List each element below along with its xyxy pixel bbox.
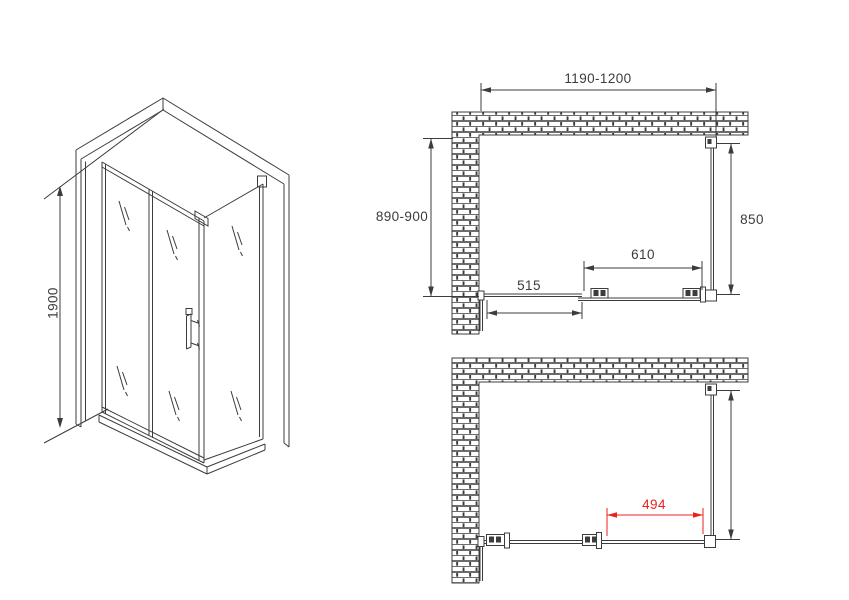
dimension-label-depth-right: 850: [740, 212, 764, 227]
dimension-label-height: 1900: [46, 287, 61, 319]
door-track-closed: [478, 287, 717, 331]
dimension-label-door-opening: 494: [642, 497, 666, 512]
dimension-label-depth-left: 890-900: [376, 209, 428, 224]
door-track-open: [478, 533, 716, 582]
dimension-label-fixed-width: 515: [517, 278, 541, 293]
dimension-depth-unlabeled: [716, 391, 740, 540]
glass-shine-marks: [117, 201, 243, 421]
dimension-label-overall-width: 1190-1200: [564, 71, 631, 86]
wall-corner: [76, 98, 289, 447]
dimension-height: 1900: [44, 109, 164, 443]
dimension-fixed-width: 515: [487, 278, 582, 319]
shower-tray: [99, 415, 265, 474]
side-panel: [204, 176, 267, 460]
side-panel-plan: [706, 137, 717, 295]
dimension-depth-right: 850: [716, 144, 764, 295]
plan-view-closed: 1190-1200 890-900 850 610: [376, 71, 764, 334]
technical-drawing-page: 1900: [0, 0, 849, 600]
dimension-door-width: 610: [584, 247, 702, 291]
dimension-label-door-width: 610: [631, 247, 655, 262]
dimension-door-opening: 494: [607, 497, 703, 536]
door-handle: [186, 309, 200, 350]
isometric-view: 1900: [44, 98, 289, 474]
side-panel-plan: [706, 384, 717, 540]
plan-view-open: 494: [452, 358, 748, 583]
brick-wall: [452, 358, 748, 583]
shower-enclosure-drawing: 1900: [0, 0, 849, 600]
